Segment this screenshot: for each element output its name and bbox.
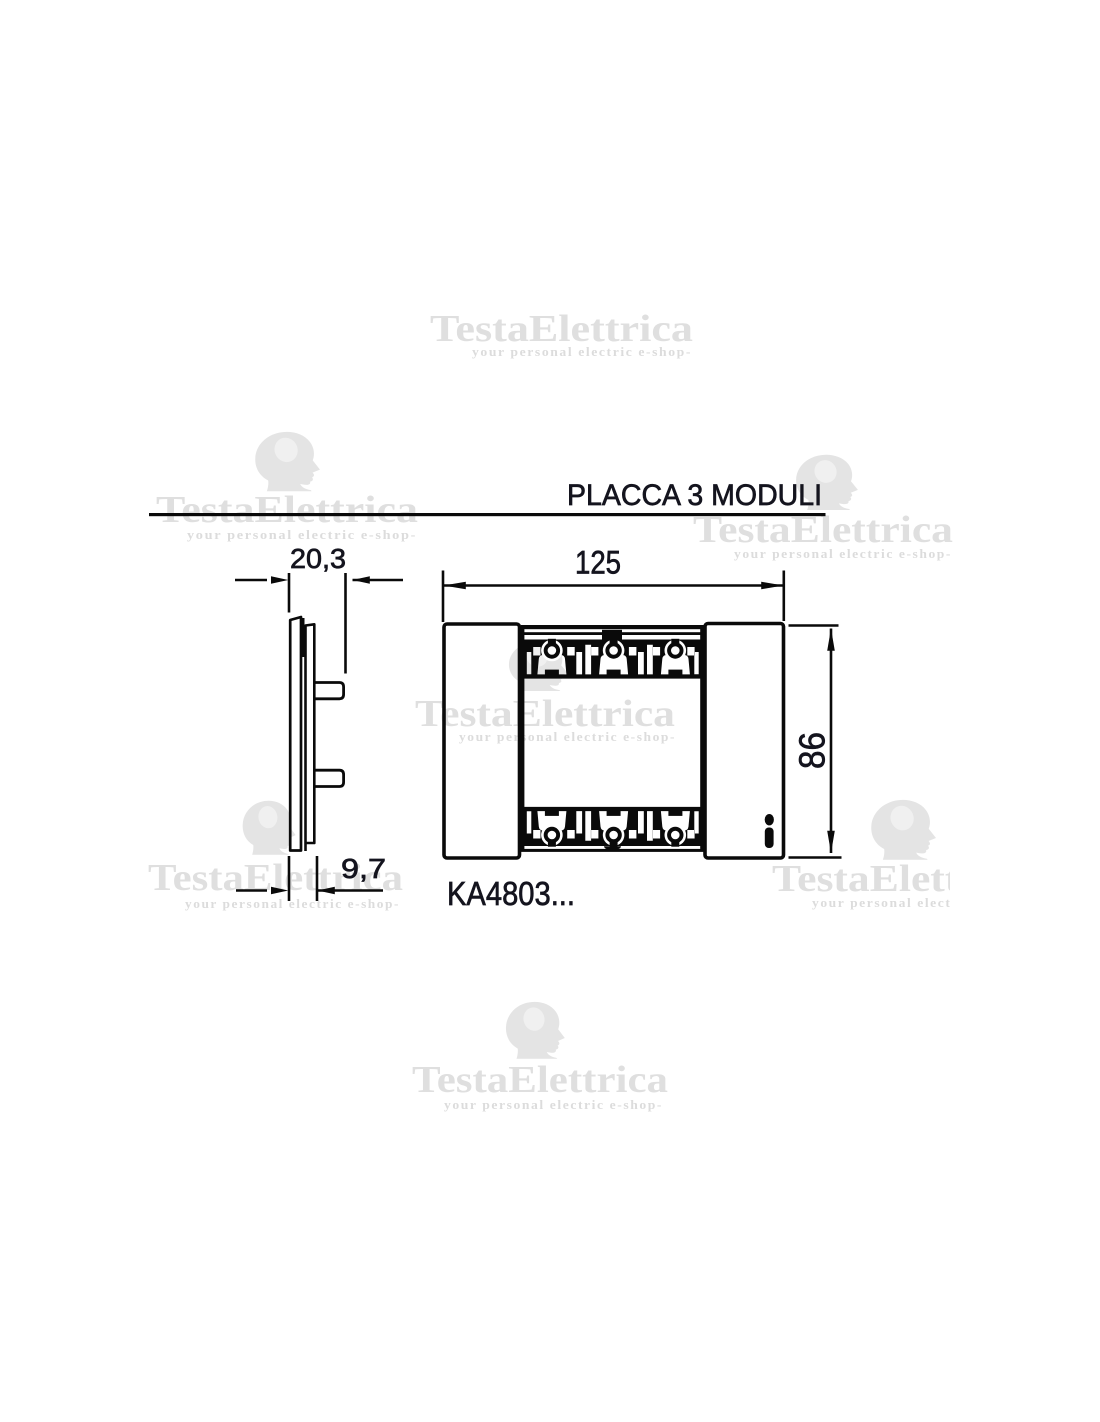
svg-text:TestaElettrica: TestaElettrica <box>156 489 418 531</box>
svg-text:your personal electric e-shop-: your personal electric e-shop- <box>812 895 1030 910</box>
svg-text:TestaElettrica: TestaElettrica <box>772 858 1032 900</box>
svg-text:your personal electric e-shop-: your personal electric e-shop- <box>444 1097 663 1112</box>
svg-text:your personal electric e-shop-: your personal electric e-shop- <box>185 896 400 911</box>
svg-text:your personal electric e-shop-: your personal electric e-shop- <box>187 527 417 542</box>
svg-text:your personal electric e-shop-: your personal electric e-shop- <box>734 546 952 561</box>
svg-text:PLACCA 3 MODULI: PLACCA 3 MODULI <box>567 479 822 512</box>
svg-text:125: 125 <box>575 545 621 581</box>
svg-text:TestaElettrica: TestaElettrica <box>412 1059 668 1101</box>
svg-text:86: 86 <box>792 732 833 769</box>
svg-text:your personal electric e-shop-: your personal electric e-shop- <box>472 344 692 359</box>
svg-text:your personal electric e-shop-: your personal electric e-shop- <box>459 729 676 744</box>
svg-text:20,3: 20,3 <box>290 543 346 574</box>
svg-text:KA4803...: KA4803... <box>447 875 575 912</box>
svg-text:9,7: 9,7 <box>341 853 386 884</box>
